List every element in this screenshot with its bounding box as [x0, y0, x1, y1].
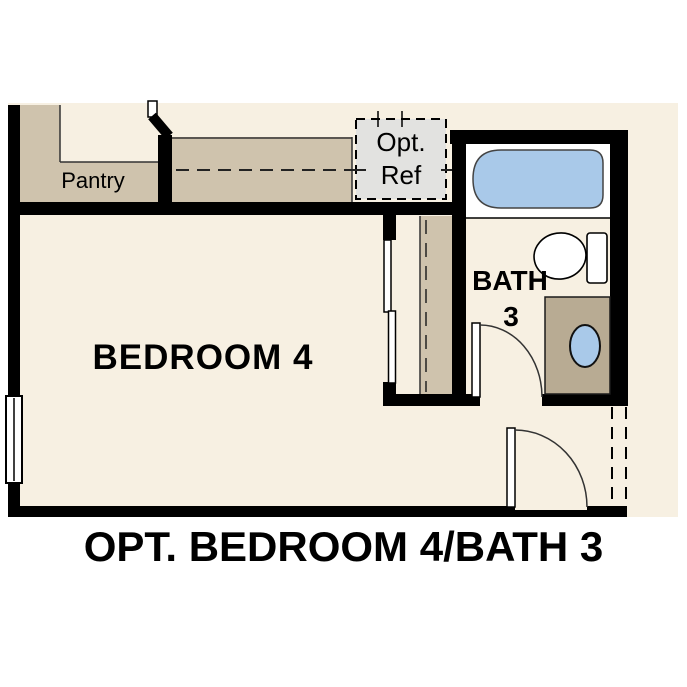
bath-wall-right	[610, 130, 628, 406]
bathtub-icon	[466, 144, 610, 218]
closet-wall-stub-top	[383, 215, 396, 240]
pantry-wall-chunk	[158, 135, 172, 203]
sink-icon	[570, 325, 600, 367]
bath-wall-bottom-right	[542, 394, 628, 406]
window-icon	[6, 396, 22, 483]
bath-wall-top	[450, 130, 628, 144]
floor-plan-page: Pantry BEDROOM 4 BATH 3 Opt.Ref OPT. BED…	[0, 0, 687, 687]
sliding-closet-door-icon	[384, 240, 391, 312]
opt-ref-label-line1: Opt.	[376, 127, 425, 157]
interior-wall-main	[8, 202, 452, 215]
bedroom4-label: BEDROOM 4	[58, 340, 348, 376]
sliding-closet-door-icon	[389, 311, 396, 383]
bath3-label-line1: BATH	[460, 266, 560, 296]
bath3-label-line2: 3	[461, 302, 561, 332]
opt-ref-label-line2: Ref	[381, 160, 421, 190]
plan-caption: OPT. BEDROOM 4/BATH 3	[0, 524, 687, 570]
bedroom-doorway-threshold	[515, 506, 587, 510]
closet-shelf	[420, 216, 452, 394]
opt-ref-label: Opt.Ref	[356, 126, 446, 192]
closet-wall-bottom	[383, 394, 466, 406]
pantry-label: Pantry	[38, 168, 148, 194]
